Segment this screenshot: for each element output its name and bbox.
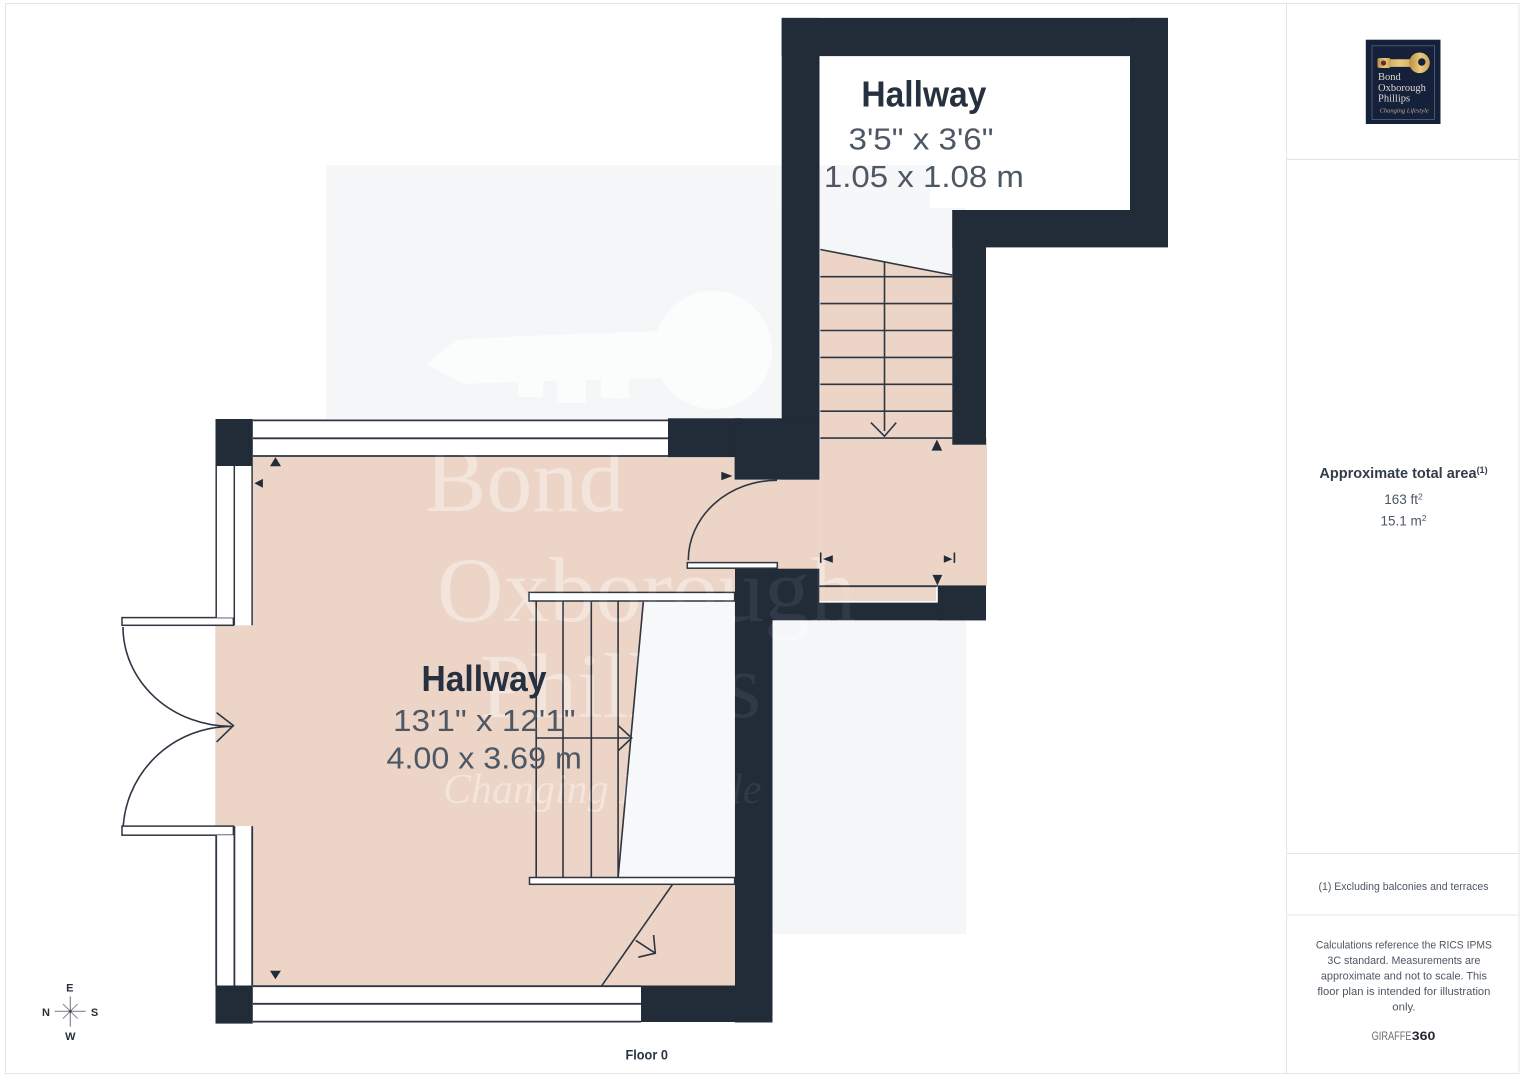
svg-text:GIRAFFE: GIRAFFE [1372,1029,1412,1043]
svg-text:(1) Excluding balconies and te: (1) Excluding balconies and terraces [1319,881,1489,893]
svg-text:only.: only. [1392,1002,1415,1014]
svg-text:N: N [42,1007,50,1019]
svg-text:4.00 x 3.69 m: 4.00 x 3.69 m [387,741,582,776]
svg-text:Changing Lifestyle: Changing Lifestyle [1380,108,1429,115]
svg-text:Approximate total area(1): Approximate total area(1) [1319,465,1487,482]
svg-text:13'1" x 12'1": 13'1" x 12'1" [393,703,576,738]
svg-text:Hallway: Hallway [861,73,986,114]
svg-text:floor plan is intended for ill: floor plan is intended for illustration [1317,986,1490,998]
svg-text:Hallway: Hallway [422,658,547,699]
svg-text:15.1 m2: 15.1 m2 [1380,513,1426,529]
svg-text:approximate and not to scale.: approximate and not to scale. This [1321,971,1487,983]
svg-text:Calculations reference the RIC: Calculations reference the RICS IPMS [1316,940,1492,952]
svg-text:Oxborough: Oxborough [1378,83,1427,94]
svg-text:E: E [66,982,73,994]
svg-text:360: 360 [1412,1029,1436,1043]
svg-text:Bond: Bond [1378,72,1402,83]
svg-text:Bond: Bond [425,429,624,531]
svg-text:Oxborough: Oxborough [437,539,856,641]
svg-text:3'5" x 3'6": 3'5" x 3'6" [849,122,994,157]
svg-text:Floor 0: Floor 0 [625,1047,668,1063]
svg-text:3C standard. Measurements are: 3C standard. Measurements are [1327,955,1480,967]
svg-text:1.05 x 1.08 m: 1.05 x 1.08 m [824,159,1024,194]
svg-text:Phillips: Phillips [1378,94,1410,105]
svg-text:W: W [65,1031,76,1043]
svg-text:S: S [91,1007,98,1019]
svg-text:163 ft2: 163 ft2 [1384,492,1423,508]
